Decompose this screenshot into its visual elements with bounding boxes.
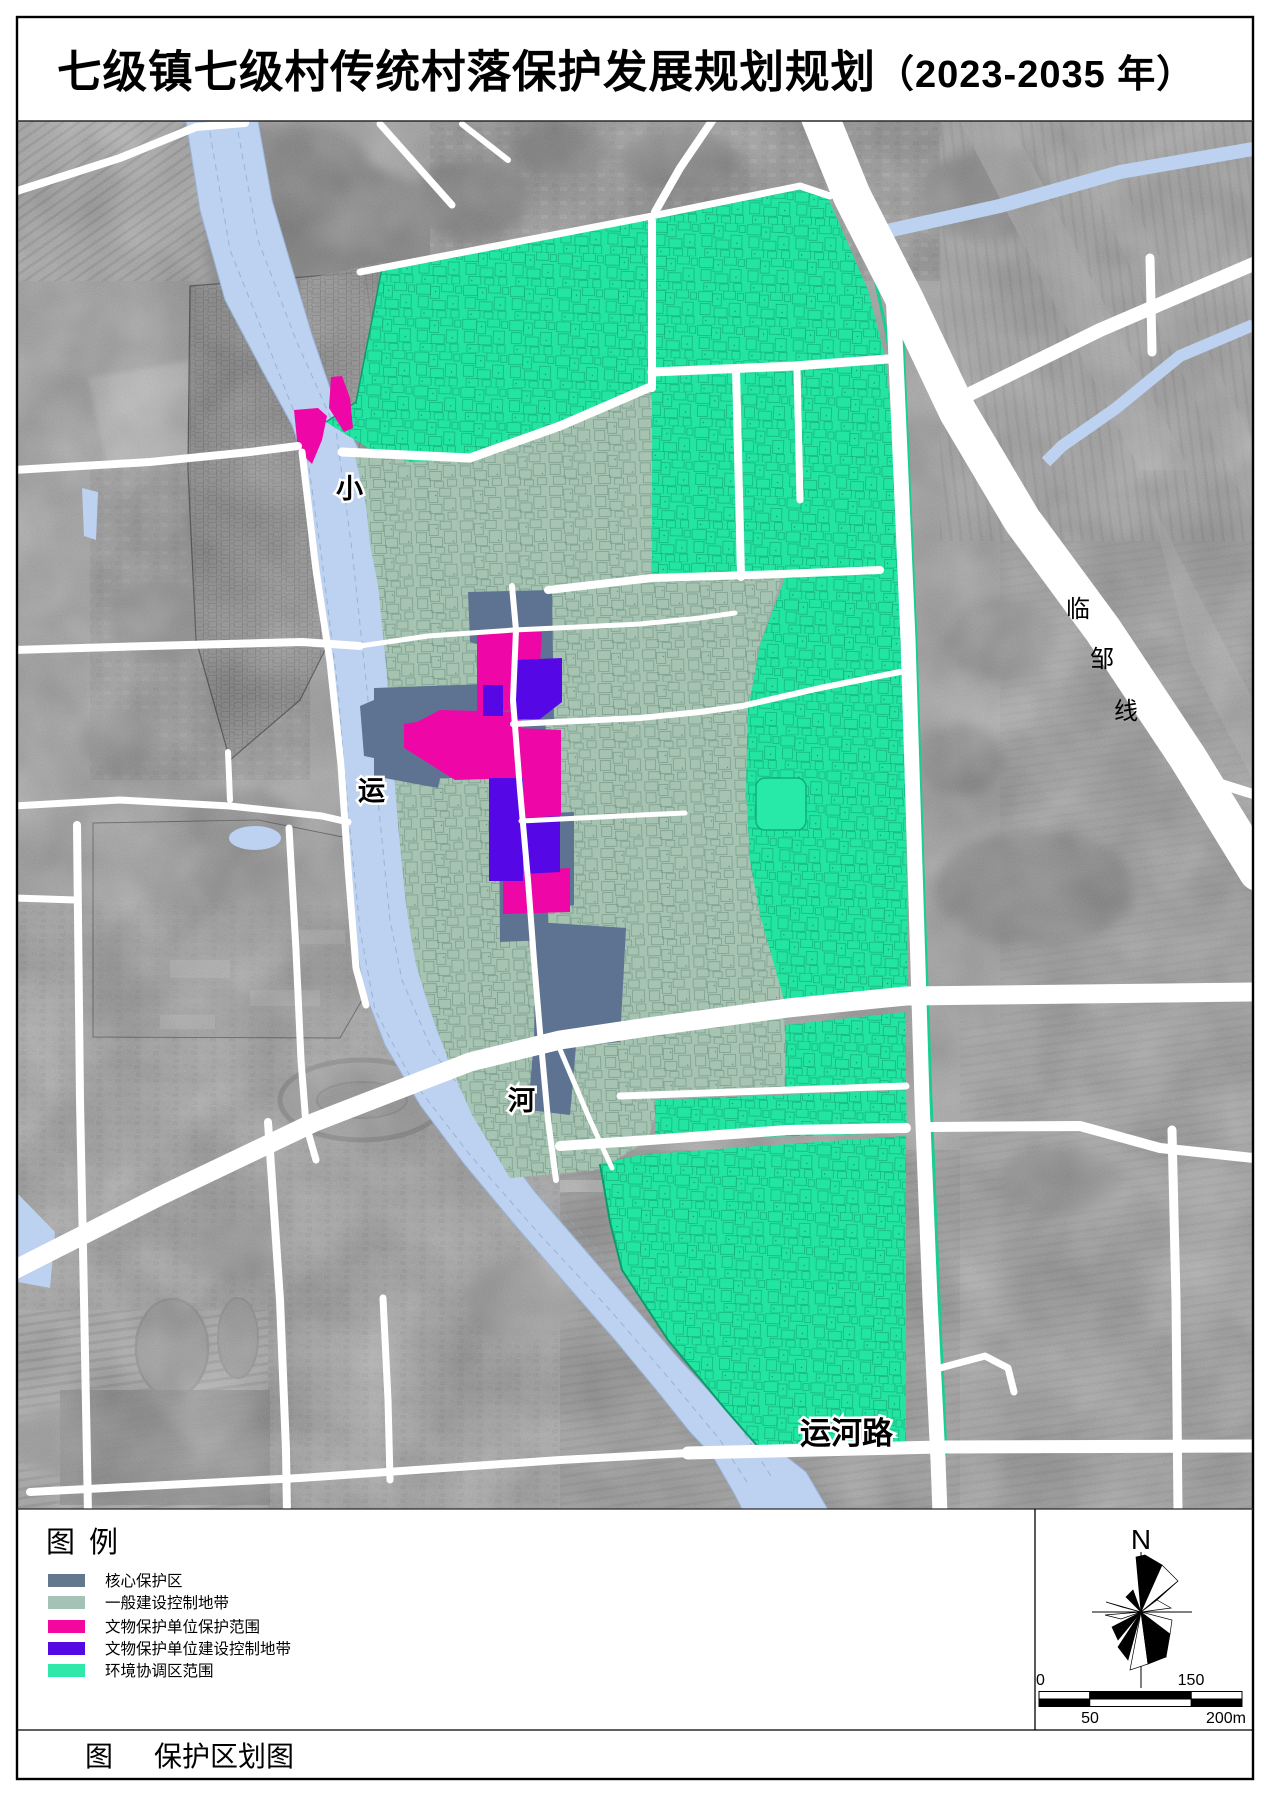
- svg-text:核心保护区: 核心保护区: [105, 1572, 183, 1590]
- svg-text:运: 运: [358, 776, 385, 806]
- svg-text:文物保护单位保护范围: 文物保护单位保护范围: [105, 1618, 260, 1636]
- svg-text:线: 线: [1114, 698, 1138, 725]
- svg-text:图例: 图例: [46, 1526, 132, 1559]
- svg-text:50: 50: [1081, 1710, 1099, 1727]
- svg-text:150: 150: [1178, 1672, 1205, 1689]
- svg-text:0: 0: [1036, 1672, 1045, 1689]
- svg-text:一般建设控制地带: 一般建设控制地带: [105, 1594, 229, 1612]
- svg-text:文物保护单位建设控制地带: 文物保护单位建设控制地带: [105, 1640, 291, 1658]
- svg-text:N: N: [1131, 1524, 1151, 1555]
- svg-text:七级镇七级村传统村落保护发展规划规划（2023-2035 年: 七级镇七级村传统村落保护发展规划规划（2023-2035 年）: [57, 48, 1195, 97]
- svg-text:保护区划图: 保护区划图: [154, 1741, 294, 1772]
- svg-text:环境协调区范围: 环境协调区范围: [105, 1661, 214, 1680]
- svg-text:200m: 200m: [1206, 1710, 1246, 1727]
- svg-text:运河路: 运河路: [800, 1416, 894, 1451]
- svg-text:小: 小: [336, 474, 363, 504]
- svg-text:邹: 邹: [1090, 646, 1114, 673]
- svg-text:图: 图: [85, 1741, 113, 1772]
- svg-text:河: 河: [508, 1086, 535, 1116]
- svg-text:临: 临: [1066, 596, 1090, 623]
